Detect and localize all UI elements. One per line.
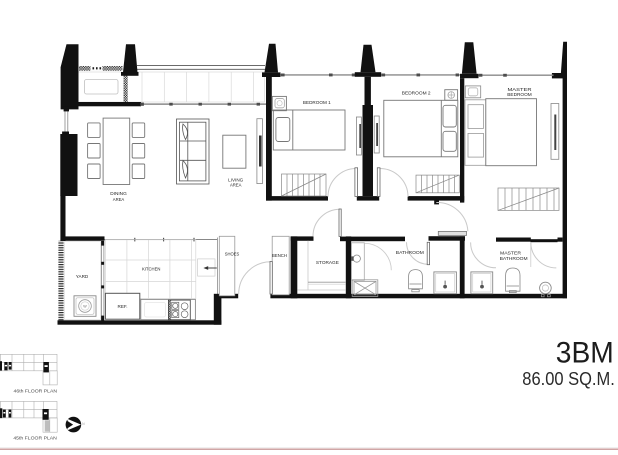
svg-text:AREA: AREA	[230, 183, 242, 188]
svg-text:STORAGE: STORAGE	[316, 260, 339, 265]
svg-text:46th FLOOR PLAN: 46th FLOOR PLAN	[14, 388, 58, 394]
svg-text:BEDROOM 2: BEDROOM 2	[402, 91, 431, 96]
svg-text:86.00 SQ.M.: 86.00 SQ.M.	[522, 368, 615, 389]
svg-text:YARD: YARD	[76, 274, 89, 279]
svg-text:MASTER: MASTER	[500, 251, 521, 256]
svg-text:DINING: DINING	[110, 191, 127, 196]
svg-text:BEDROOM 1: BEDROOM 1	[303, 100, 331, 105]
svg-text:W: W	[83, 305, 87, 309]
svg-text:BATHROOM: BATHROOM	[500, 256, 529, 261]
svg-text:BATHROOM: BATHROOM	[396, 250, 425, 255]
svg-text:REF.: REF.	[118, 304, 128, 309]
svg-text:KITCHEN: KITCHEN	[142, 267, 161, 272]
svg-text:BENCH: BENCH	[272, 253, 287, 258]
svg-text:AREA: AREA	[113, 197, 125, 202]
svg-text:3BM: 3BM	[556, 337, 614, 370]
svg-text:SHOES: SHOES	[225, 252, 240, 257]
svg-text:45th FLOOR PLAN: 45th FLOOR PLAN	[13, 436, 57, 442]
svg-text:BEDROOM: BEDROOM	[507, 92, 532, 97]
